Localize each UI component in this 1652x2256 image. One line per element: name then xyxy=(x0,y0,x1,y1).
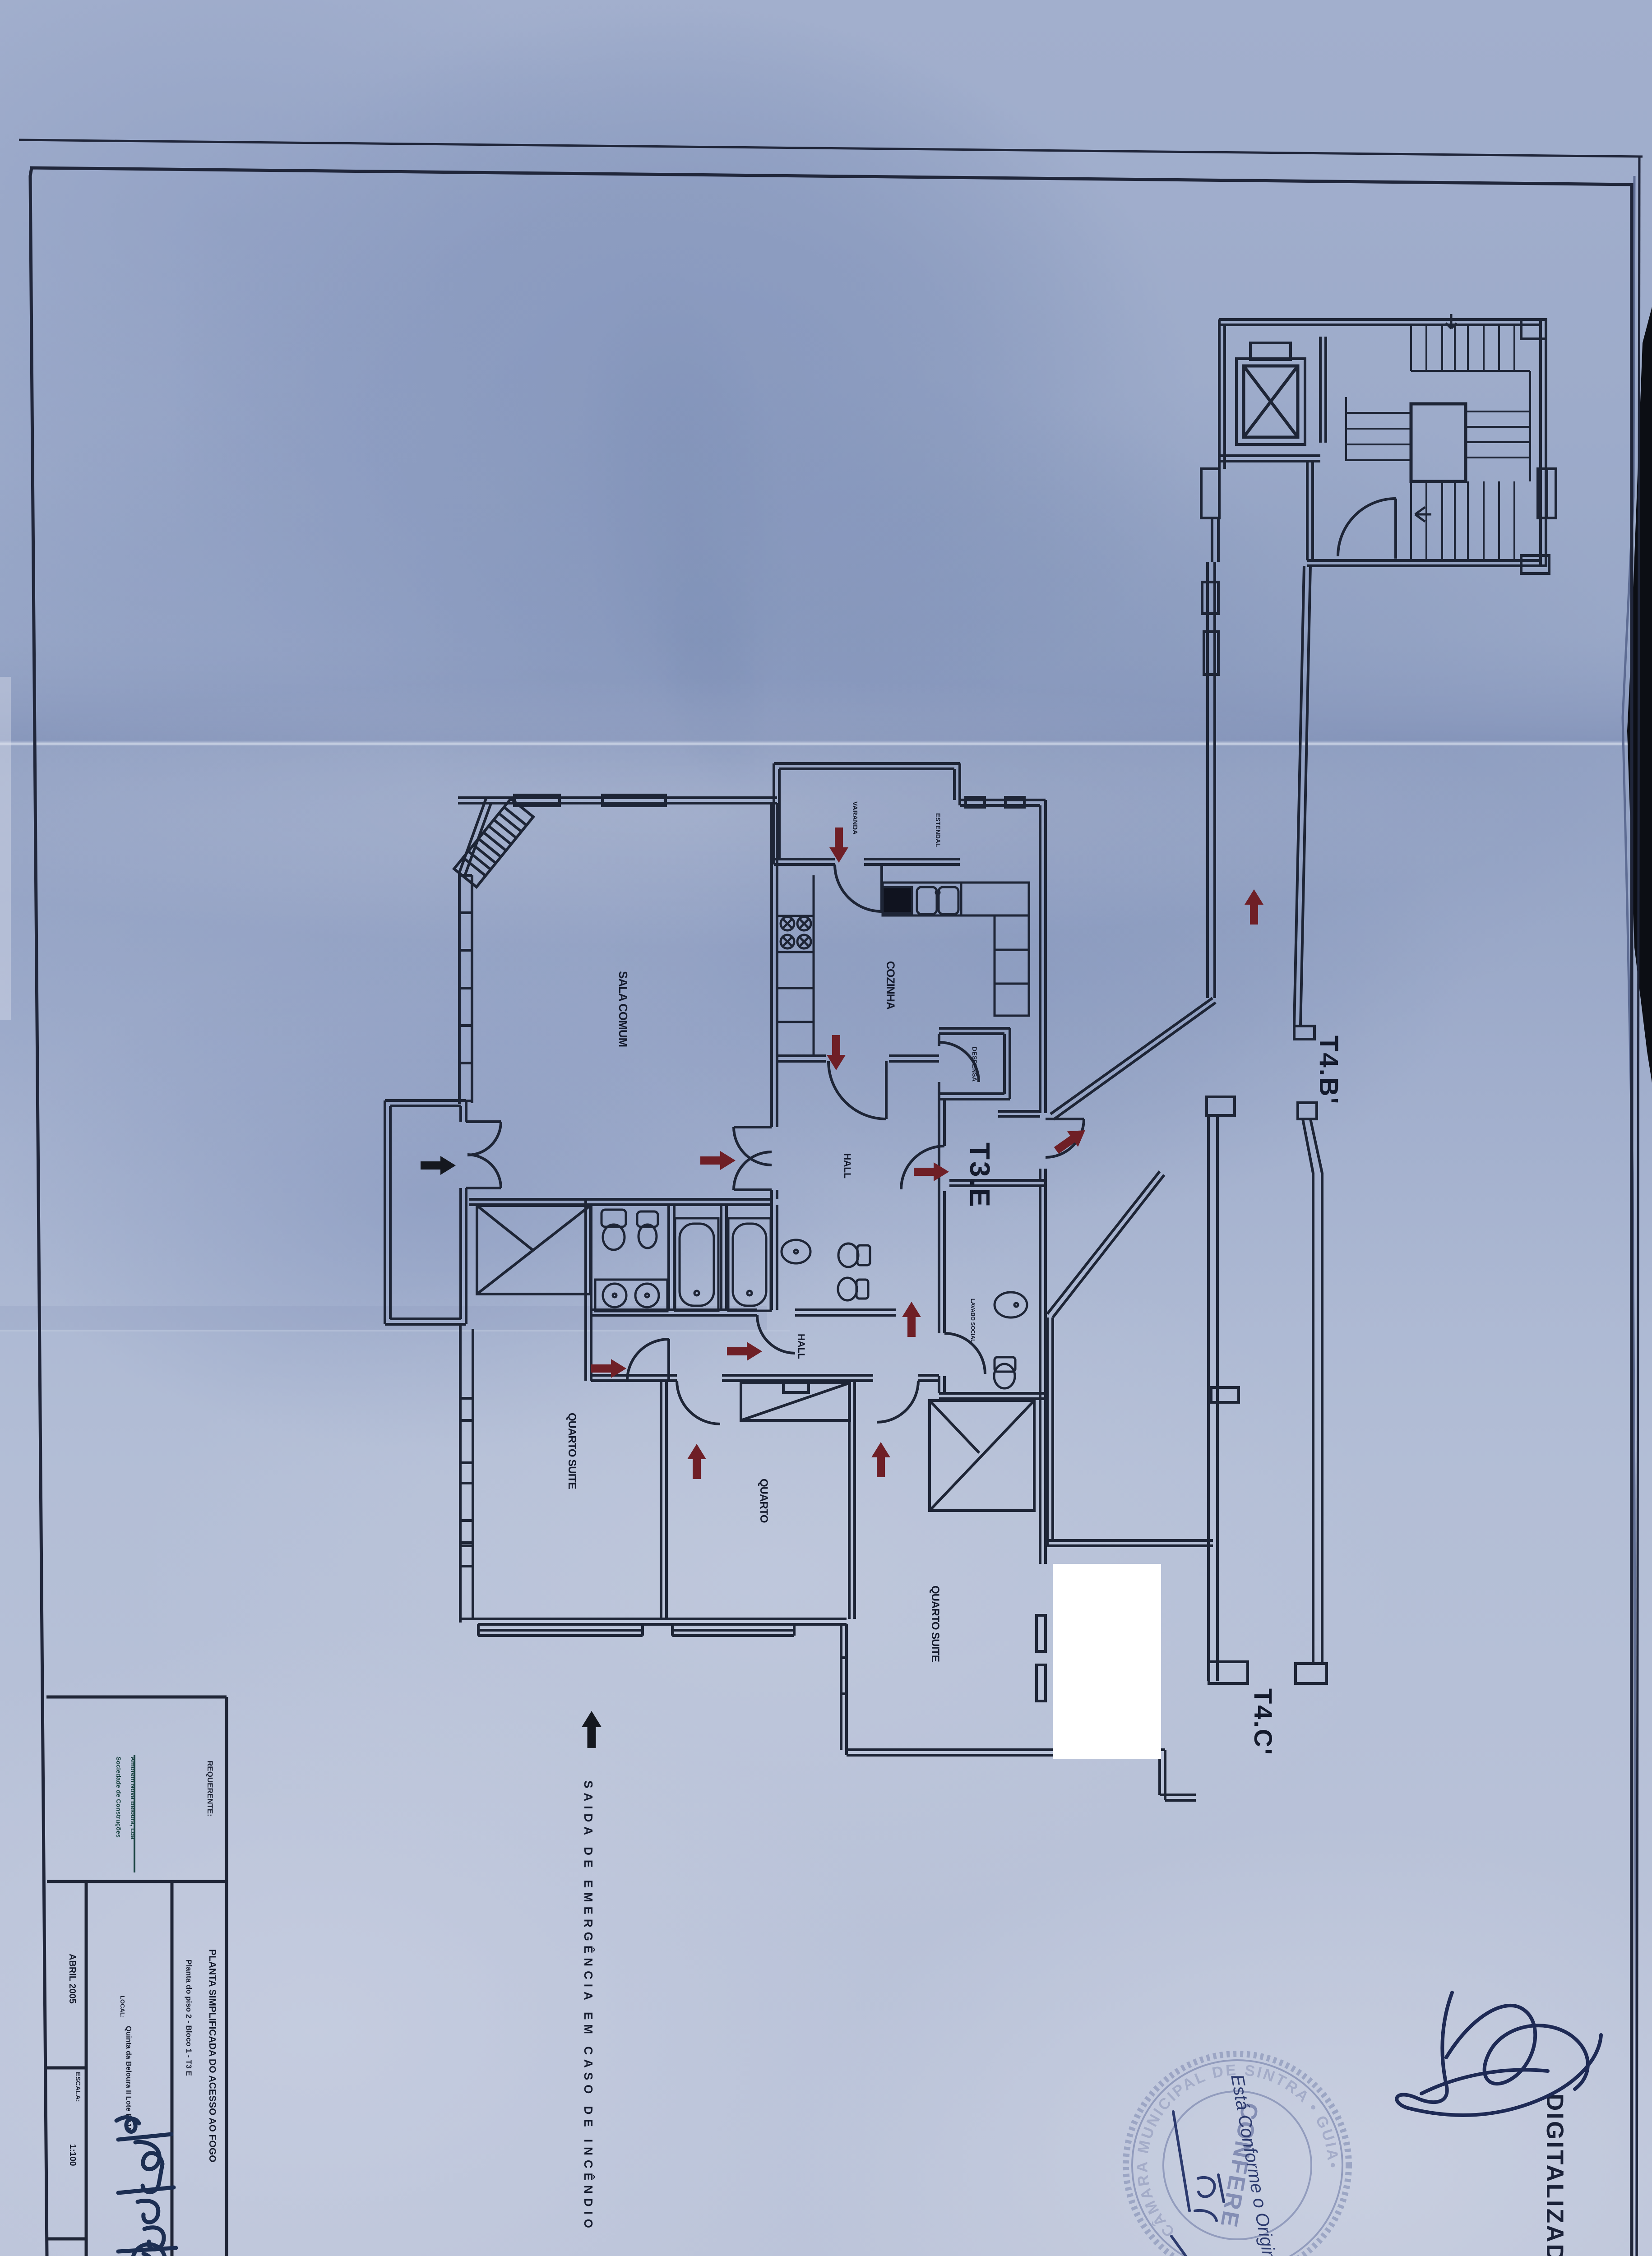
svg-text:1:100: 1:100 xyxy=(68,2144,77,2166)
svg-text:DIGITALIZADO: DIGITALIZADO xyxy=(1541,2094,1568,2256)
svg-text:HALL: HALL xyxy=(842,1153,852,1179)
svg-text:T4.C': T4.C' xyxy=(1249,1688,1277,1756)
svg-text:REQUERENTE:: REQUERENTE: xyxy=(206,1761,214,1817)
svg-text:ESCALA:: ESCALA: xyxy=(74,2072,82,2102)
svg-text:LOCAL:: LOCAL: xyxy=(119,1996,126,2018)
svg-text:Sociedade de Construções: Sociedade de Construções xyxy=(115,1757,122,1838)
svg-text:Planta do piso 2 - Bloco 1 - T: Planta do piso 2 - Bloco 1 - T3 E xyxy=(185,1960,193,2076)
svg-text:T4.B': T4.B' xyxy=(1314,1036,1343,1105)
svg-text:T3.E: T3.E xyxy=(964,1142,995,1209)
svg-text:QUARTO SUITE: QUARTO SUITE xyxy=(566,1413,578,1489)
svg-text:DESPENSA: DESPENSA xyxy=(971,1047,978,1082)
svg-text:PLANTA SIMPLIFICADA DO ACESSO: PLANTA SIMPLIFICADA DO ACESSO AO FOGO xyxy=(207,1949,217,2163)
svg-text:COZINHA: COZINHA xyxy=(884,961,897,1010)
svg-text:ESTENDAL: ESTENDAL xyxy=(935,813,942,847)
svg-text:HALL: HALL xyxy=(796,1334,806,1359)
svg-text:Amorém Nova Beloura, Lda: Amorém Nova Beloura, Lda xyxy=(130,1757,137,1840)
svg-text:QUARTO SUITE: QUARTO SUITE xyxy=(929,1586,941,1662)
svg-text:LAVABO SOCIAL: LAVABO SOCIAL xyxy=(970,1299,976,1343)
svg-text:ABRIL 2005: ABRIL 2005 xyxy=(67,1954,77,2004)
svg-text:SALA COMUM: SALA COMUM xyxy=(616,971,630,1047)
svg-text:QUARTO: QUARTO xyxy=(758,1479,770,1523)
svg-text:VARANDA: VARANDA xyxy=(851,801,859,835)
svg-text:SAIDA DE EMERGÊNCIA EM CASO DE: SAIDA DE EMERGÊNCIA EM CASO DE INCÊNDIO xyxy=(582,1780,595,2233)
